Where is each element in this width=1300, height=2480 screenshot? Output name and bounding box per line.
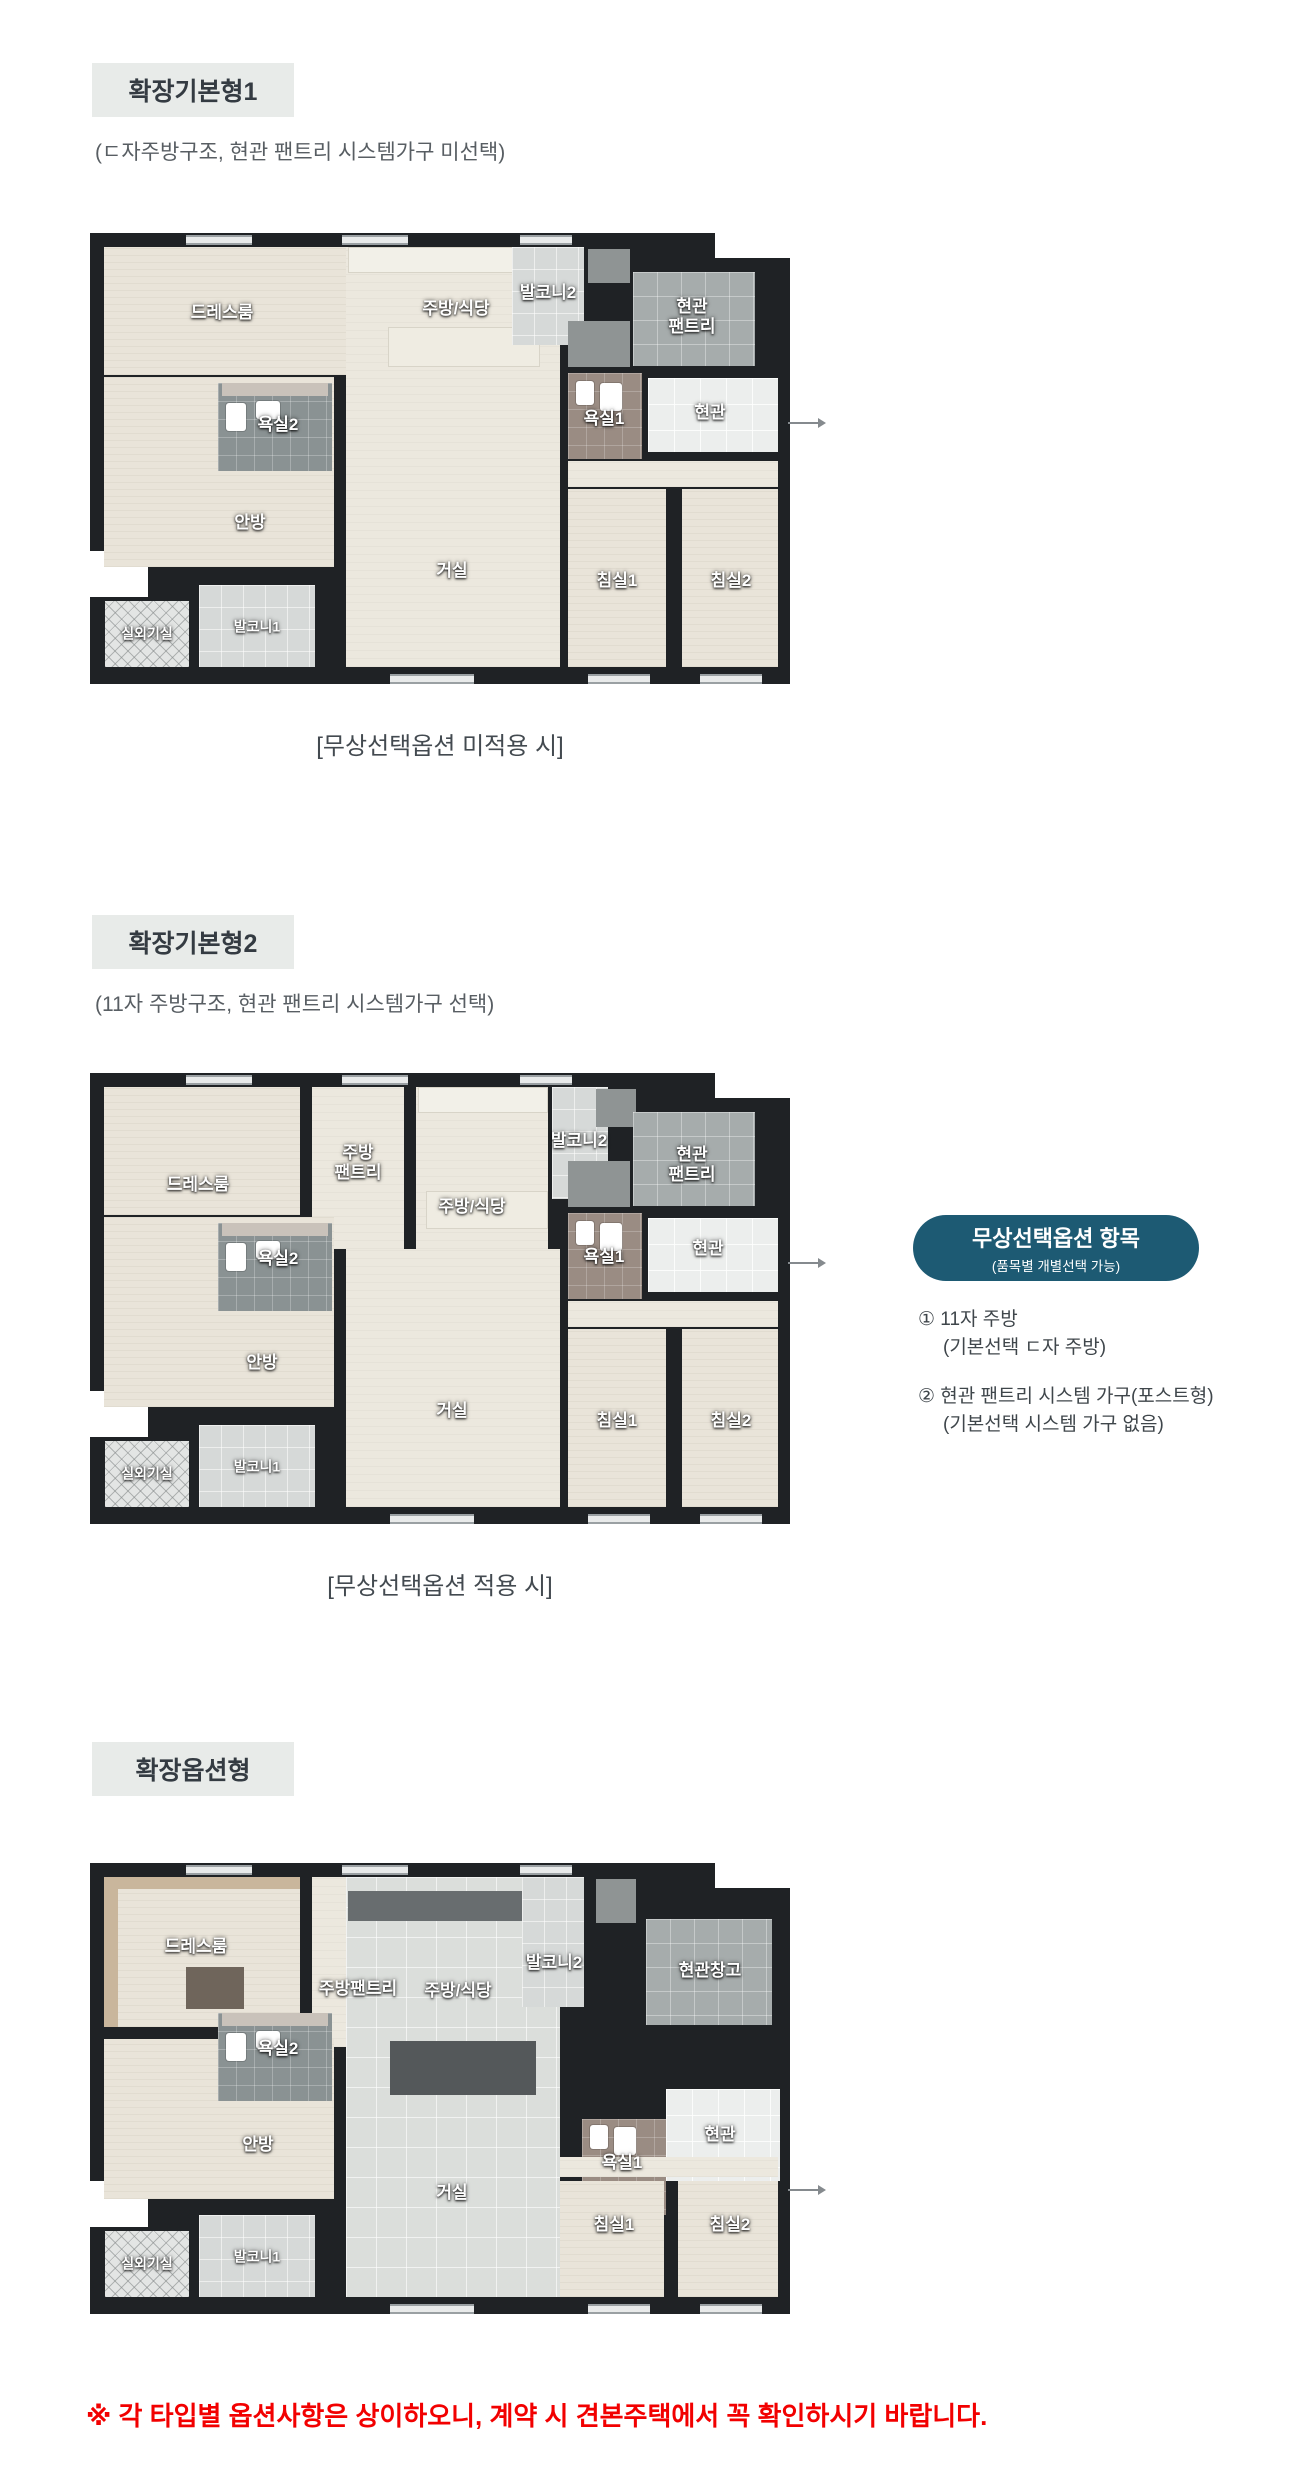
label-dressroom: 드레스룸 (167, 1175, 230, 1195)
window (186, 1075, 252, 1085)
entrance-arrow (788, 422, 818, 424)
window (700, 1514, 762, 1524)
label-kitchen_pantry: 주방팬트리 (319, 1979, 397, 1999)
option-notes: ① 11자 주방 (기본선택 ㄷ자 주방) ② 현관 팬트리 시스템 가구(포스… (918, 1306, 1214, 1438)
option-note-2: ② 현관 팬트리 시스템 가구(포스트형) (기본선택 시스템 가구 없음) (918, 1383, 1214, 1438)
label-kitchen_dining: 주방/식당 (422, 299, 489, 319)
label-entrance: 현관 (692, 1239, 723, 1259)
kitchen-counter (418, 1087, 548, 1113)
label-balcony2: 발코니2 (551, 1131, 607, 1151)
label-entrance_pantry: 현관 팬트리 (669, 1145, 716, 1185)
wall-notch (715, 233, 790, 258)
note-detail: (기본선택 시스템 가구 없음) (918, 1411, 1214, 1439)
corridor (568, 1301, 778, 1327)
footnote-warning: ※ 각 타입별 옵션사항은 상이하오니, 계약 시 견본주택에서 꼭 확인하시기… (86, 2396, 987, 2433)
floor-plan-1: 드레스룸주방/식당발코니2현관 팬트리현관욕실1욕실2안방거실침실1침실2실외기… (90, 233, 790, 688)
window (588, 1514, 650, 1524)
utility-shaft (588, 249, 630, 283)
window (520, 1075, 572, 1085)
window (520, 1865, 572, 1875)
window (588, 674, 650, 684)
label-living_room: 거실 (436, 2183, 467, 2203)
label-balcony2: 발코니2 (520, 283, 576, 303)
section2-caption: [무상선택옵션 적용 시] (90, 1566, 790, 1601)
label-bedroom2: 침실2 (711, 571, 752, 591)
room-balcony2 (522, 1877, 584, 2007)
free-option-badge: 무상선택옵션 항목 (품목별 개별선택 가능) (913, 1215, 1199, 1281)
section1-subtitle: (ㄷ자주방구조, 현관 팬트리 시스템가구 미선택) (95, 136, 505, 166)
label-master_bedroom: 안방 (234, 513, 265, 533)
section3-title: 확장옵션형 (92, 1742, 294, 1796)
label-bath2: 욕실2 (258, 415, 299, 435)
label-bedroom1: 침실1 (597, 1411, 638, 1431)
label-balcony1: 발코니1 (234, 619, 280, 636)
window (342, 1865, 408, 1875)
kitchen-island (390, 2041, 536, 2095)
label-entrance: 현관 (704, 2125, 735, 2145)
bath-shelf (222, 1223, 328, 1236)
option-note-1: ① 11자 주방 (기본선택 ㄷ자 주방) (918, 1306, 1214, 1361)
entrance-arrow (788, 2189, 818, 2191)
label-dressroom: 드레스룸 (165, 1937, 228, 1957)
toilet (226, 403, 246, 431)
label-bedroom2: 침실2 (710, 2215, 751, 2235)
window (390, 1514, 474, 1524)
label-balcony1: 발코니1 (234, 1459, 280, 1476)
floor-plan-2: 드레스룸주방 팬트리주방/식당발코니2현관 팬트리현관욕실1욕실2안방거실침실1… (90, 1073, 790, 1528)
corridor (568, 461, 778, 487)
label-kitchen_pantry: 주방 팬트리 (335, 1143, 382, 1183)
label-outdoor_unit_room: 실외기실 (121, 1466, 173, 1483)
label-bedroom1: 침실1 (594, 2215, 635, 2235)
floor-plan-3: 드레스룸주방팬트리주방/식당발코니2현관창고현관욕실1욕실2안방거실침실1침실2… (90, 1863, 790, 2318)
toilet (226, 2033, 246, 2061)
room-bedroom1 (560, 2181, 664, 2297)
furniture (186, 1967, 244, 2009)
toilet (614, 2127, 636, 2155)
label-master_bedroom: 안방 (246, 1353, 277, 1373)
wall-notch (715, 1863, 790, 1888)
label-master_bedroom: 안방 (242, 2135, 273, 2155)
section1-caption: [무상선택옵션 미적용 시] (90, 726, 790, 761)
wardrobe (104, 1877, 118, 2027)
label-kitchen_dining: 주방/식당 (438, 1197, 505, 1217)
brochure-page: 확장기본형1 (ㄷ자주방구조, 현관 팬트리 시스템가구 미선택) 드레스룸주방… (0, 0, 1300, 2480)
badge-subtitle: (품목별 개별선택 가능) (992, 1255, 1120, 1275)
room-living (346, 1249, 560, 1507)
utility-shaft (568, 321, 630, 367)
badge-title: 무상선택옵션 항목 (972, 1221, 1140, 1253)
room-bedroom2 (678, 2181, 778, 2297)
wardrobe (118, 1877, 300, 1889)
wall-notch (715, 1073, 790, 1098)
window (700, 2304, 762, 2314)
window (390, 2304, 474, 2314)
label-living_room: 거실 (436, 1401, 467, 1421)
toilet (226, 1243, 246, 1271)
sink (590, 2125, 608, 2149)
label-bath2: 욕실2 (258, 2039, 299, 2059)
note-detail: (기본선택 ㄷ자 주방) (918, 1334, 1214, 1362)
window (520, 235, 572, 245)
toilet (600, 383, 622, 411)
label-kitchen_dining: 주방/식당 (424, 1981, 491, 2001)
label-bath2: 욕실2 (258, 1249, 299, 1269)
note-item: ① 11자 주방 (918, 1306, 1214, 1334)
label-bedroom1: 침실1 (597, 571, 638, 591)
section1-title: 확장기본형1 (92, 63, 294, 117)
label-balcony2: 발코니2 (526, 1953, 582, 1973)
label-bath1: 욕실1 (584, 409, 625, 429)
window (186, 1865, 252, 1875)
sink (576, 1221, 594, 1245)
label-living_room: 거실 (436, 561, 467, 581)
utility-shaft (568, 1161, 630, 1207)
sink (576, 381, 594, 405)
entrance-arrow (788, 1262, 818, 1264)
label-bath1: 욕실1 (602, 2153, 643, 2173)
bath-shelf (222, 383, 328, 396)
utility-shaft (596, 1089, 636, 1127)
label-bath1: 욕실1 (584, 1247, 625, 1267)
room-dressroom (104, 1087, 300, 1215)
label-outdoor_unit_room: 실외기실 (121, 626, 173, 643)
note-item: ② 현관 팬트리 시스템 가구(포스트형) (918, 1383, 1214, 1411)
section2-subtitle: (11자 주방구조, 현관 팬트리 시스템가구 선택) (95, 988, 494, 1018)
corridor (560, 2157, 778, 2177)
window (588, 2304, 650, 2314)
window (700, 674, 762, 684)
window (342, 235, 408, 245)
bath-shelf (222, 2013, 328, 2026)
label-dressroom: 드레스룸 (191, 303, 254, 323)
label-outdoor_unit_room: 실외기실 (121, 2256, 173, 2273)
window (342, 1075, 408, 1085)
window (186, 235, 252, 245)
label-entrance_storage: 현관창고 (679, 1961, 742, 1981)
utility-shaft (596, 1879, 636, 1923)
section2-title: 확장기본형2 (92, 915, 294, 969)
label-balcony1: 발코니1 (234, 2249, 280, 2266)
label-bedroom2: 침실2 (711, 1411, 752, 1431)
label-entrance: 현관 (694, 403, 725, 423)
window (390, 674, 474, 684)
label-entrance_pantry: 현관 팬트리 (669, 297, 716, 337)
